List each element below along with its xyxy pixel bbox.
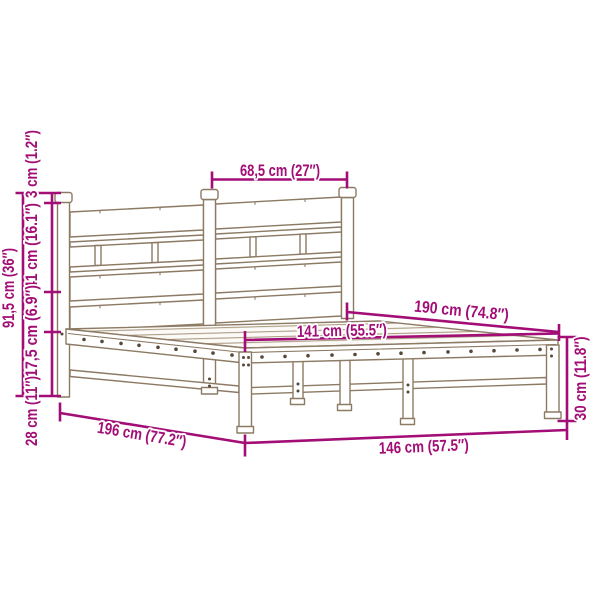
center-support-leg <box>403 356 413 420</box>
right-post-finial <box>339 188 356 198</box>
product-dimension-diagram: 68,5 cm (27″) 91,5 cm (36″) 3 cm (1.2″) … <box>0 0 600 600</box>
front-left-foot <box>237 427 254 434</box>
front-right-foot <box>545 412 562 419</box>
front-left-leg <box>239 352 252 428</box>
bed-frame-diagram-svg: 68,5 cm (27″) 91,5 cm (36″) 3 cm (1.2″) … <box>0 0 600 600</box>
headboard-left-post <box>58 202 70 397</box>
dimension-foot-end-height: 30 cm (11.8″) <box>558 337 591 441</box>
dimension-post-spacing: 68,5 cm (27″) <box>212 162 347 189</box>
dim-label-total-length: 196 cm (77.2″) <box>96 419 188 452</box>
leg-foot <box>338 405 352 411</box>
dim-label-finial-height: 3 cm (1.2″) <box>23 130 41 198</box>
center-support-leg <box>293 361 303 400</box>
leg-foot <box>401 419 415 425</box>
headboard-center-post <box>204 200 216 394</box>
dim-label-under-bed-clearance: 28 cm (11″) <box>23 376 41 446</box>
leg-foot <box>291 399 305 405</box>
center-post-finial <box>201 190 218 200</box>
dim-label-post-spacing: 68,5 cm (27″) <box>240 162 320 180</box>
headboard-left-panel <box>70 205 204 331</box>
headboard-right-panel <box>216 197 342 323</box>
dimension-total-width: 146 cm (57.5″) <box>245 430 567 458</box>
dim-label-rail-section-height: 17,5 cm (6.9″) <box>23 285 41 377</box>
center-support-leg <box>340 360 350 406</box>
dim-label-inner-width: 141 cm (55.5″) <box>297 321 387 341</box>
dim-label-foot-end-height: 30 cm (11.8″) <box>572 337 590 421</box>
dim-label-total-width: 146 cm (57.5″) <box>378 436 469 458</box>
under-bed-structure <box>70 356 547 425</box>
dim-label-headboard-panel-height: 41 cm (16.1″) <box>23 203 41 289</box>
center-post-foot <box>202 388 218 395</box>
dim-label-headboard-total-height: 91,5 cm (36″) <box>0 248 18 328</box>
headboard-right-post <box>342 198 354 319</box>
dimension-height-segments: 3 cm (1.2″) 41 cm (16.1″) 17,5 cm (6.9″)… <box>23 130 61 446</box>
dimension-total-length: 196 cm (77.2″) <box>60 403 245 452</box>
